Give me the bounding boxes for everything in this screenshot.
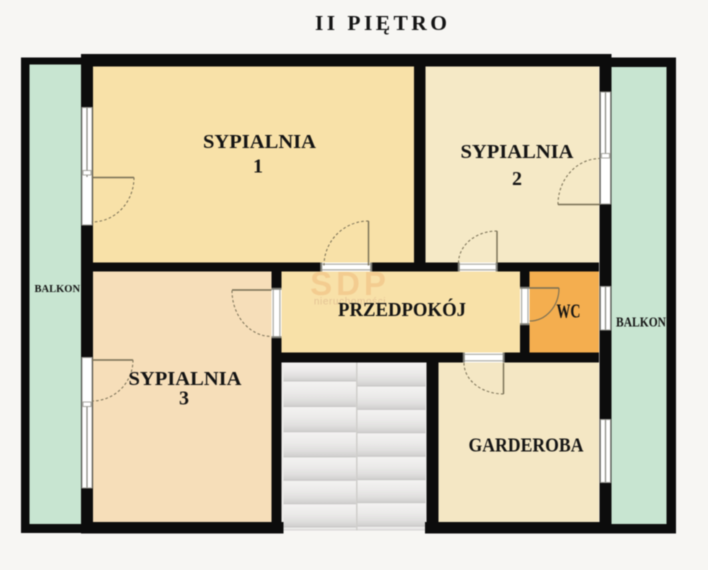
svg-text:WC: WC bbox=[557, 301, 581, 323]
svg-text:1: 1 bbox=[253, 156, 263, 178]
svg-text:SYPIALNIA: SYPIALNIA bbox=[203, 131, 317, 153]
svg-text:BALKON: BALKON bbox=[35, 284, 81, 295]
svg-text:SYPIALNIA: SYPIALNIA bbox=[461, 141, 575, 163]
svg-text:3: 3 bbox=[179, 388, 189, 410]
svg-text:PRZEDPOKÓJ: PRZEDPOKÓJ bbox=[338, 297, 466, 321]
svg-text:BALKON: BALKON bbox=[616, 315, 666, 330]
svg-text:2: 2 bbox=[512, 168, 522, 190]
svg-text:GARDEROBA: GARDEROBA bbox=[469, 435, 584, 457]
